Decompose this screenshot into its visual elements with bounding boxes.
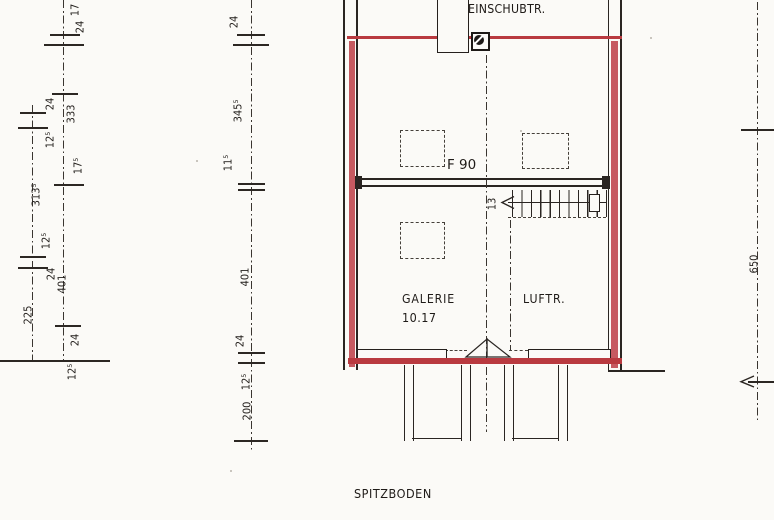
railing-post	[504, 365, 514, 441]
dashed-opening	[522, 133, 569, 169]
dim-value: 12⁵	[45, 132, 56, 149]
room-name-label: GALERIE	[402, 291, 455, 306]
scan-speck	[196, 160, 198, 162]
dimension-tick	[54, 184, 84, 186]
dimension-tick	[18, 267, 48, 269]
dimension-tick	[20, 256, 46, 258]
stair-handrail-section	[589, 194, 600, 212]
dimension-tick	[238, 189, 265, 191]
dim-value: 225	[23, 306, 34, 325]
dimension-tick	[237, 34, 265, 36]
railing-post	[404, 365, 414, 441]
dimension-tick	[238, 183, 265, 185]
left-wall-outer-line	[343, 0, 345, 370]
railing-bottom-rail	[412, 438, 461, 439]
dim-value: 17⁵	[73, 158, 84, 175]
dim-value: 345⁵	[233, 100, 244, 123]
scan-speck	[230, 470, 232, 472]
dashed-opening	[400, 130, 445, 167]
dashed-opening	[400, 222, 445, 259]
void-label: LUFTR.	[523, 291, 566, 306]
dimension-tick	[238, 352, 265, 354]
dimension-tick	[44, 44, 84, 46]
dimension-tick	[234, 440, 268, 442]
center-axis-line	[486, 55, 487, 432]
dim-value: 24	[45, 98, 56, 111]
dimension-tick	[20, 112, 46, 114]
dimension-tick	[55, 325, 81, 327]
floor-hatch-flaps-icon	[460, 334, 516, 360]
railing-post	[558, 365, 568, 441]
gallery-edge-axis-line	[510, 220, 511, 350]
railing-bottom-rail	[512, 438, 558, 439]
dim-value: 12⁵	[241, 374, 252, 391]
dim-value: 200	[242, 402, 253, 421]
architectural-section-drawing: 17 24 24 333 12⁵ 17⁵ 313⁵ 12⁵ 24 401 225…	[0, 0, 774, 520]
dimension-tick	[233, 44, 269, 46]
pulldown-stair-label: EINSCHUBTR.	[468, 1, 545, 16]
dim-value: 650	[749, 255, 760, 274]
left-wall-red-fill	[349, 41, 356, 367]
dimension-line-left-inner	[63, 0, 64, 362]
dimension-arrow-icon	[738, 374, 756, 389]
dimension-line-right	[757, 2, 758, 420]
room-area-label: 10.17	[402, 310, 436, 325]
wall-foot-line	[608, 370, 665, 372]
dim-value: 24	[229, 16, 240, 29]
dim-value: 401	[240, 268, 251, 287]
f90-beam-upper-line	[358, 178, 608, 180]
railing-post	[461, 365, 471, 441]
dimension-tick	[18, 127, 48, 129]
dimension-tick	[0, 360, 110, 362]
dim-value: 333	[66, 105, 77, 124]
dim-value: 24	[235, 335, 246, 348]
dimension-tick	[50, 34, 80, 36]
dim-value: 313⁵	[31, 184, 42, 207]
scan-speck	[520, 130, 522, 132]
dimension-tick	[52, 93, 78, 95]
dim-value: 24	[75, 21, 86, 34]
dim-value: 12⁵	[67, 364, 78, 381]
scan-speck	[650, 37, 652, 39]
dimension-tick	[741, 129, 774, 131]
f90-beam-lower-line	[358, 185, 608, 187]
dimension-tick	[238, 362, 265, 364]
stair-direction-arrow-icon	[499, 195, 516, 210]
fire-rating-label: F 90	[447, 157, 476, 173]
stair-riser-count: 13	[487, 198, 498, 211]
dim-value: 12⁵	[41, 233, 52, 250]
right-wall-red-fill	[611, 41, 618, 368]
dim-value: 401	[57, 275, 68, 294]
dim-value: 17	[70, 4, 81, 17]
dim-value: 24	[70, 334, 81, 347]
drawing-title: SPITZBODEN	[354, 486, 432, 501]
chimney-outline	[437, 0, 469, 53]
f90-beam-end-cap	[602, 176, 610, 189]
stair-hidden-edge	[508, 217, 606, 218]
f90-beam-end-cap	[355, 176, 362, 189]
right-wall-outer-line	[620, 0, 622, 371]
dim-value: 11⁵	[223, 155, 234, 172]
